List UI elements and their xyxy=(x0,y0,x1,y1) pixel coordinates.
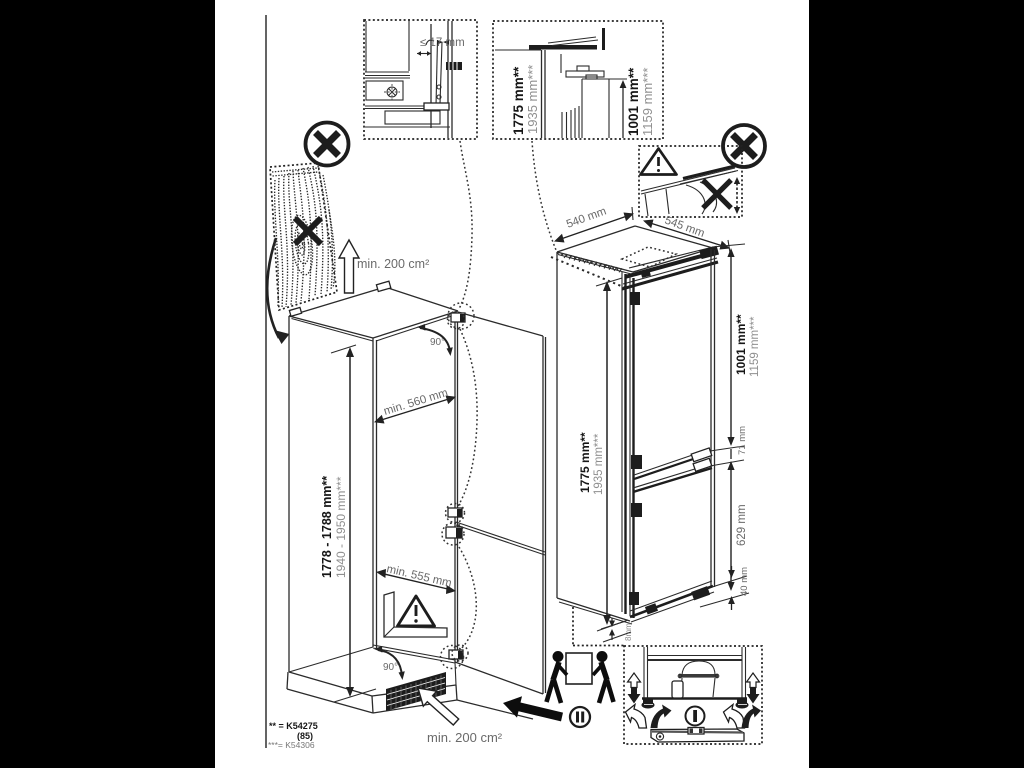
svg-text:71 mm: 71 mm xyxy=(737,426,748,455)
svg-text:min. 200 cm²: min. 200 cm² xyxy=(357,257,429,271)
svg-text:1778 - 1788 mm**: 1778 - 1788 mm** xyxy=(320,476,334,578)
svg-text:1775 mm**: 1775 mm** xyxy=(511,66,526,135)
svg-text:1940 - 1950 mm***: 1940 - 1950 mm*** xyxy=(334,476,348,578)
svg-text:629 mm: 629 mm xyxy=(736,504,748,546)
svg-text:40 mm: 40 mm xyxy=(739,567,750,596)
svg-text:8mm: 8mm xyxy=(624,623,633,641)
svg-text:90°: 90° xyxy=(430,337,445,348)
svg-text:1159 mm***: 1159 mm*** xyxy=(749,316,761,377)
svg-text:min. 200 cm²: min. 200 cm² xyxy=(427,730,503,745)
svg-text:90°: 90° xyxy=(383,662,398,673)
svg-text:1775 mm**: 1775 mm** xyxy=(578,432,592,493)
svg-text:1001 mm**: 1001 mm** xyxy=(734,314,748,375)
svg-text:≤ 17 mm: ≤ 17 mm xyxy=(420,37,465,49)
svg-text:1935 mm***: 1935 mm*** xyxy=(593,433,605,495)
svg-text:***= K54306: ***= K54306 xyxy=(268,740,315,750)
svg-text:1935 mm***: 1935 mm*** xyxy=(525,65,540,134)
svg-text:1159 mm***: 1159 mm*** xyxy=(640,68,655,136)
svg-text:** = K54275: ** = K54275 xyxy=(269,721,318,731)
svg-text:1001 mm**: 1001 mm** xyxy=(626,67,641,136)
